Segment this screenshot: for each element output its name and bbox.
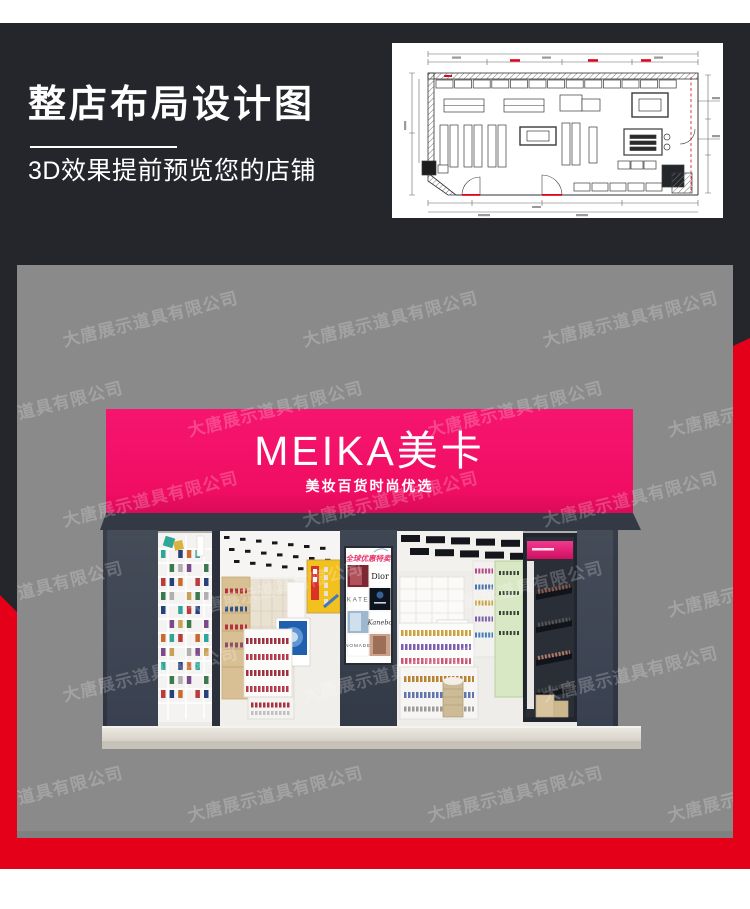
- wicker-basket: [443, 677, 463, 717]
- gray-bottom-shade: [17, 831, 733, 838]
- right-edge-transition: [733, 338, 750, 346]
- product-gondolas: [398, 623, 478, 719]
- fixtures: [422, 80, 692, 193]
- aisle-racks: [244, 629, 294, 719]
- wood-box: [554, 701, 568, 717]
- canopy: [100, 513, 641, 530]
- top-white-strip: [0, 0, 750, 23]
- left-interior-bay: [220, 531, 340, 726]
- store-sign: MEIKA美卡 美妆百货时尚优选: [106, 409, 633, 513]
- right-display-window: [523, 533, 577, 722]
- sidewalk-lip: [102, 726, 641, 728]
- right-wall: [577, 530, 618, 726]
- sidewalk: [102, 726, 641, 741]
- poster-header: 全球优惠特卖: [346, 554, 392, 563]
- brand-kanebo: Kanebo: [367, 619, 393, 627]
- page-subtitle: 3D效果提前预览您的店铺: [28, 157, 316, 186]
- left-wall: [103, 530, 158, 726]
- store-sign-subtitle: 美妆百货时尚优选: [106, 479, 633, 493]
- store-sign-title: MEIKA美卡: [106, 431, 633, 472]
- footer-white-strip: [0, 869, 750, 909]
- bottle-wall-shelf: [473, 561, 495, 657]
- brand-dior: Dior: [371, 572, 389, 581]
- page-title: 整店布局设计图: [28, 86, 315, 124]
- right-edge-dark-strip: [733, 265, 750, 338]
- yellow-poster: [307, 560, 340, 613]
- promo-page: 整店布局设计图 3D效果提前预览您的店铺: [0, 0, 750, 909]
- green-showcase: [495, 561, 523, 697]
- sidewalk-edge: [102, 741, 641, 749]
- floorplan-panel: [392, 43, 723, 218]
- brand-kate: KATE: [347, 597, 370, 604]
- bottom-red-band: [0, 838, 750, 869]
- left-display-window: [158, 533, 215, 722]
- right-edge-red-strip: [733, 346, 750, 838]
- storefront-render: 全球优惠特卖 Dior KATE Kanebo: [98, 409, 643, 750]
- window-divider: [212, 531, 220, 726]
- left-edge-dark-strip: [0, 265, 17, 595]
- center-pillar: 全球优惠特卖 Dior KATE Kanebo: [340, 530, 397, 726]
- floorplan-drawing: [392, 43, 723, 218]
- right-interior-bay: [397, 531, 529, 726]
- brand-nomade: NOMADE: [345, 643, 371, 649]
- title-divider: [30, 146, 177, 148]
- left-edge-transition: [0, 595, 17, 612]
- wood-box: [536, 695, 554, 717]
- left-edge-red-strip: [0, 612, 17, 838]
